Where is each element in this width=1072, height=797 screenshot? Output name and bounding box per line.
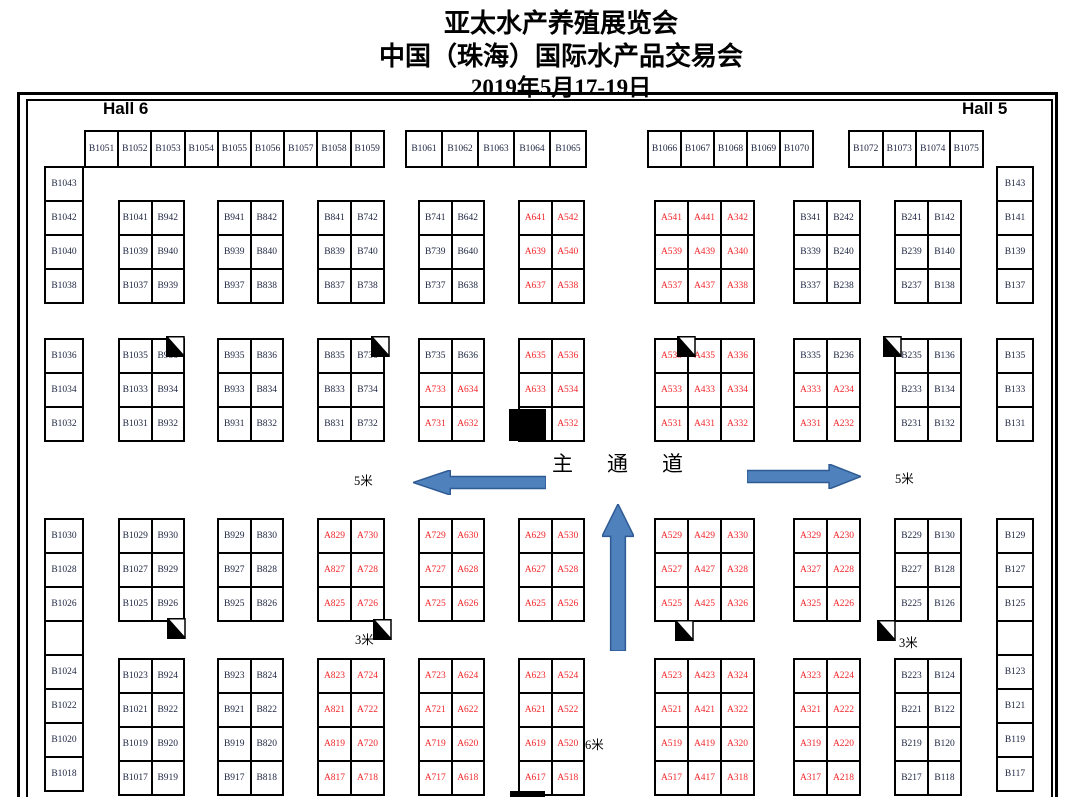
booth-B1056: B1056: [250, 130, 285, 168]
booth-B929: B929: [151, 552, 186, 588]
booth-B1064: B1064: [513, 130, 551, 168]
booth-B129: B129: [996, 518, 1034, 554]
booth-B231: B231: [894, 406, 929, 442]
booth-B929: B929: [217, 518, 252, 554]
booth-B139: B139: [996, 234, 1034, 270]
booth-B1051: B1051: [84, 130, 119, 168]
aisle-size-label: 5米: [895, 468, 914, 487]
booth-A533: A533: [654, 372, 689, 408]
booth-A722: A722: [350, 692, 385, 728]
aisle-size-label: 3米: [899, 632, 918, 651]
booth-B832: B832: [250, 406, 285, 442]
booth-A727: A727: [418, 552, 453, 588]
booth-A730: A730: [350, 518, 385, 554]
booth-A338: A338: [720, 268, 755, 304]
booth-B926: B926: [151, 586, 186, 622]
booth-B142: B142: [927, 200, 962, 236]
booth-B1063: B1063: [477, 130, 515, 168]
booth-A332: A332: [720, 406, 755, 442]
booth-A220: A220: [826, 726, 861, 762]
booth-B1025: B1025: [118, 586, 153, 622]
booth-A326: A326: [720, 586, 755, 622]
booth-A825: A825: [317, 586, 352, 622]
booth-A425: A425: [687, 586, 722, 622]
booth-B239: B239: [894, 234, 929, 270]
booth-A635: A635: [518, 338, 553, 374]
booth-B840: B840: [250, 234, 285, 270]
booth-A539: A539: [654, 234, 689, 270]
booth-A517: A517: [654, 760, 689, 796]
booth-B830: B830: [250, 518, 285, 554]
booth-B735: B735: [418, 338, 453, 374]
booth-A437: A437: [687, 268, 722, 304]
booth-B939: B939: [217, 234, 252, 270]
booth-B934: B934: [151, 372, 186, 408]
booth-A328: A328: [720, 552, 755, 588]
booth-B1067: B1067: [680, 130, 715, 168]
booth-B824: B824: [250, 658, 285, 694]
booth-B839: B839: [317, 234, 352, 270]
booth-A230: A230: [826, 518, 861, 554]
booth-B1030: B1030: [44, 518, 84, 554]
booth-B236: B236: [826, 338, 861, 374]
booth-A439: A439: [687, 234, 722, 270]
booth-B1027: B1027: [118, 552, 153, 588]
booth-B1054: B1054: [184, 130, 219, 168]
booth-B131: B131: [996, 406, 1034, 442]
booth-A441: A441: [687, 200, 722, 236]
booth-B925: B925: [217, 586, 252, 622]
booth-B140: B140: [927, 234, 962, 270]
booth-A336: A336: [720, 338, 755, 374]
booth-A541: A541: [654, 200, 689, 236]
booth-B1040: B1040: [44, 234, 84, 270]
booth-A532: A532: [551, 406, 586, 442]
booth-A630: A630: [451, 518, 486, 554]
booth-A621: A621: [518, 692, 553, 728]
pillar-corner-icon: [877, 620, 896, 641]
booth-A641: A641: [518, 200, 553, 236]
booth-A320: A320: [720, 726, 755, 762]
booth-B940: B940: [151, 234, 186, 270]
booth-B638: B638: [451, 268, 486, 304]
booth-cell-empty: [996, 620, 1034, 656]
booth-B919: B919: [151, 760, 186, 796]
booth-A625: A625: [518, 586, 553, 622]
booth-B1072: B1072: [848, 130, 884, 168]
booth-B1035: B1035: [118, 338, 153, 374]
booth-B1068: B1068: [713, 130, 748, 168]
booth-B1074: B1074: [915, 130, 951, 168]
booth-B1022: B1022: [44, 688, 84, 724]
booth-A524: A524: [551, 658, 586, 694]
booth-B930: B930: [151, 518, 186, 554]
booth-B1062: B1062: [441, 130, 479, 168]
booth-A433: A433: [687, 372, 722, 408]
booth-B237: B237: [894, 268, 929, 304]
booth-A423: A423: [687, 658, 722, 694]
booth-A622: A622: [451, 692, 486, 728]
booth-B120: B120: [927, 726, 962, 762]
booth-A429: A429: [687, 518, 722, 554]
booth-B822: B822: [250, 692, 285, 728]
booth-B1036: B1036: [44, 338, 84, 374]
booth-B1026: B1026: [44, 586, 84, 622]
pillar-block-icon: [509, 409, 546, 441]
booth-B642: B642: [451, 200, 486, 236]
booth-B1029: B1029: [118, 518, 153, 554]
booth-A529: A529: [654, 518, 689, 554]
booth-A725: A725: [418, 586, 453, 622]
booth-A531: A531: [654, 406, 689, 442]
aisle-size-label: 3米: [355, 629, 374, 648]
booth-B1034: B1034: [44, 372, 84, 408]
aisle-arrow-left: [413, 470, 546, 495]
booth-A718: A718: [350, 760, 385, 796]
booth-B734: B734: [350, 372, 385, 408]
floor-plan: 亚太水产养殖展览会 中国（珠海）国际水产品交易会 2019年5月17-19日 H…: [0, 0, 1072, 797]
booth-B119: B119: [996, 722, 1034, 758]
booth-A723: A723: [418, 658, 453, 694]
booth-B132: B132: [927, 406, 962, 442]
booth-A729: A729: [418, 518, 453, 554]
booth-A717: A717: [418, 760, 453, 796]
booth-B740: B740: [350, 234, 385, 270]
booth-A322: A322: [720, 692, 755, 728]
booth-B939: B939: [151, 268, 186, 304]
booth-A817: A817: [317, 760, 352, 796]
booth-B732: B732: [350, 406, 385, 442]
booth-A827: A827: [317, 552, 352, 588]
booth-B1037: B1037: [118, 268, 153, 304]
booth-A519: A519: [654, 726, 689, 762]
booth-A431: A431: [687, 406, 722, 442]
booth-A632: A632: [451, 406, 486, 442]
booth-B1023: B1023: [118, 658, 153, 694]
booth-A619: A619: [518, 726, 553, 762]
booth-B241: B241: [894, 200, 929, 236]
booth-B838: B838: [250, 268, 285, 304]
booth-B238: B238: [826, 268, 861, 304]
booth-A731: A731: [418, 406, 453, 442]
booth-B227: B227: [894, 552, 929, 588]
booth-B130: B130: [927, 518, 962, 554]
booth-B1017: B1017: [118, 760, 153, 796]
booth-B136: B136: [927, 338, 962, 374]
booth-B738: B738: [350, 268, 385, 304]
booth-A528: A528: [551, 552, 586, 588]
booth-B921: B921: [217, 692, 252, 728]
booth-A634: A634: [451, 372, 486, 408]
booth-B124: B124: [927, 658, 962, 694]
booth-A324: A324: [720, 658, 755, 694]
booth-B125: B125: [996, 586, 1034, 622]
booth-B1052: B1052: [117, 130, 152, 168]
booth-B1053: B1053: [150, 130, 185, 168]
booth-B128: B128: [927, 552, 962, 588]
booth-A728: A728: [350, 552, 385, 588]
booth-B935: B935: [217, 338, 252, 374]
booth-A421: A421: [687, 692, 722, 728]
booth-B919: B919: [217, 726, 252, 762]
booth-B828: B828: [250, 552, 285, 588]
booth-B920: B920: [151, 726, 186, 762]
booth-A222: A222: [826, 692, 861, 728]
hall5-label: Hall 5: [962, 99, 1007, 119]
booth-B219: B219: [894, 726, 929, 762]
booth-B1065: B1065: [549, 130, 587, 168]
main-aisle-label: 主通道: [552, 448, 717, 478]
booth-B640: B640: [451, 234, 486, 270]
booth-B135: B135: [996, 338, 1034, 374]
aisle-arrow-right: [747, 464, 861, 489]
booth-A523: A523: [654, 658, 689, 694]
booth-B127: B127: [996, 552, 1034, 588]
booth-A224: A224: [826, 658, 861, 694]
booth-B1038: B1038: [44, 268, 84, 304]
booth-B1028: B1028: [44, 552, 84, 588]
booth-A829: A829: [317, 518, 352, 554]
booth-B121: B121: [996, 688, 1034, 724]
booth-B133: B133: [996, 372, 1034, 408]
pillar-block-icon: [510, 791, 545, 797]
booth-A342: A342: [720, 200, 755, 236]
booth-B933: B933: [217, 372, 252, 408]
booth-B118: B118: [927, 760, 962, 796]
booth-A724: A724: [350, 658, 385, 694]
booth-B1032: B1032: [44, 406, 84, 442]
booth-A537: A537: [654, 268, 689, 304]
booth-B922: B922: [151, 692, 186, 728]
booth-B134: B134: [927, 372, 962, 408]
booth-A628: A628: [451, 552, 486, 588]
booth-A823: A823: [317, 658, 352, 694]
booth-B141: B141: [996, 200, 1034, 236]
booth-B223: B223: [894, 658, 929, 694]
booth-B221: B221: [894, 692, 929, 728]
booth-A323: A323: [793, 658, 828, 694]
booth-A319: A319: [793, 726, 828, 762]
booth-B831: B831: [317, 406, 352, 442]
booth-B937: B937: [217, 268, 252, 304]
booth-A526: A526: [551, 586, 586, 622]
booth-A536: A536: [551, 338, 586, 374]
booth-B1055: B1055: [217, 130, 252, 168]
booth-B1039: B1039: [118, 234, 153, 270]
booth-A334: A334: [720, 372, 755, 408]
booth-B737: B737: [418, 268, 453, 304]
booth-B217: B217: [894, 760, 929, 796]
booth-B826: B826: [250, 586, 285, 622]
booth-B1075: B1075: [949, 130, 985, 168]
booth-A626: A626: [451, 586, 486, 622]
booth-A327: A327: [793, 552, 828, 588]
booth-A542: A542: [551, 200, 586, 236]
booth-B836: B836: [250, 338, 285, 374]
booth-A330: A330: [720, 518, 755, 554]
booth-B636: B636: [451, 338, 486, 374]
pillar-corner-icon: [166, 336, 185, 357]
booth-A821: A821: [317, 692, 352, 728]
booth-B1070: B1070: [779, 130, 814, 168]
booth-B126: B126: [927, 586, 962, 622]
booth-A540: A540: [551, 234, 586, 270]
pillar-corner-icon: [675, 620, 694, 641]
booth-A518: A518: [551, 760, 586, 796]
booth-A627: A627: [518, 552, 553, 588]
booth-B917: B917: [217, 760, 252, 796]
booth-A637: A637: [518, 268, 553, 304]
booth-A419: A419: [687, 726, 722, 762]
booth-B240: B240: [826, 234, 861, 270]
booth-B1020: B1020: [44, 722, 84, 758]
booth-A720: A720: [350, 726, 385, 762]
booth-B739: B739: [418, 234, 453, 270]
aisle-size-label: 5米: [354, 470, 373, 489]
booth-B225: B225: [894, 586, 929, 622]
booth-B1021: B1021: [118, 692, 153, 728]
exhibition-title: 亚太水产养殖展览会: [50, 3, 1072, 40]
booth-B820: B820: [250, 726, 285, 762]
booth-B229: B229: [894, 518, 929, 554]
booth-B337: B337: [793, 268, 828, 304]
aisle-arrow-up: [602, 504, 634, 651]
booth-B1031: B1031: [118, 406, 153, 442]
booth-A530: A530: [551, 518, 586, 554]
booth-A329: A329: [793, 518, 828, 554]
booth-A733: A733: [418, 372, 453, 408]
pillar-corner-icon: [677, 336, 696, 357]
booth-A819: A819: [317, 726, 352, 762]
booth-B1033: B1033: [118, 372, 153, 408]
booth-B931: B931: [217, 406, 252, 442]
booth-A321: A321: [793, 692, 828, 728]
booth-B837: B837: [317, 268, 352, 304]
booth-B242: B242: [826, 200, 861, 236]
booth-B1059: B1059: [350, 130, 385, 168]
booth-B138: B138: [927, 268, 962, 304]
booth-cell-empty: [44, 620, 84, 656]
booth-B137: B137: [996, 268, 1034, 304]
booth-B339: B339: [793, 234, 828, 270]
booth-A234: A234: [826, 372, 861, 408]
booth-B1042: B1042: [44, 200, 84, 236]
booth-A719: A719: [418, 726, 453, 762]
booth-B123: B123: [996, 654, 1034, 690]
booth-B841: B841: [317, 200, 352, 236]
booth-A331: A331: [793, 406, 828, 442]
booth-A633: A633: [518, 372, 553, 408]
booth-A520: A520: [551, 726, 586, 762]
booth-A721: A721: [418, 692, 453, 728]
booth-A417: A417: [687, 760, 722, 796]
booth-A522: A522: [551, 692, 586, 728]
booth-A525: A525: [654, 586, 689, 622]
booth-B818: B818: [250, 760, 285, 796]
booth-B143: B143: [996, 166, 1034, 202]
booth-A317: A317: [793, 760, 828, 796]
booth-A333: A333: [793, 372, 828, 408]
booth-B1018: B1018: [44, 756, 84, 792]
booth-B233: B233: [894, 372, 929, 408]
booth-B1069: B1069: [746, 130, 781, 168]
booth-A624: A624: [451, 658, 486, 694]
booth-A618: A618: [451, 760, 486, 796]
booth-B1041: B1041: [118, 200, 153, 236]
booth-A623: A623: [518, 658, 553, 694]
booth-A527: A527: [654, 552, 689, 588]
booth-B122: B122: [927, 692, 962, 728]
booth-B835: B835: [317, 338, 352, 374]
booth-B942: B942: [151, 200, 186, 236]
booth-B923: B923: [217, 658, 252, 694]
booth-B1024: B1024: [44, 654, 84, 690]
booth-A521: A521: [654, 692, 689, 728]
booth-A629: A629: [518, 518, 553, 554]
aisle-size-label: 6米: [585, 734, 604, 753]
pillar-corner-icon: [373, 619, 392, 640]
hall6-label: Hall 6: [103, 99, 148, 119]
booth-B941: B941: [217, 200, 252, 236]
booth-B924: B924: [151, 658, 186, 694]
booth-B1057: B1057: [283, 130, 318, 168]
booth-B834: B834: [250, 372, 285, 408]
booth-A218: A218: [826, 760, 861, 796]
booth-A620: A620: [451, 726, 486, 762]
booth-A726: A726: [350, 586, 385, 622]
booth-B1066: B1066: [647, 130, 682, 168]
booth-A228: A228: [826, 552, 861, 588]
booth-A639: A639: [518, 234, 553, 270]
booth-B341: B341: [793, 200, 828, 236]
booth-B833: B833: [317, 372, 352, 408]
booth-B1043: B1043: [44, 166, 84, 202]
pillar-corner-icon: [167, 618, 186, 639]
booth-B117: B117: [996, 756, 1034, 792]
booth-B927: B927: [217, 552, 252, 588]
booth-A226: A226: [826, 586, 861, 622]
booth-A232: A232: [826, 406, 861, 442]
booth-B1061: B1061: [405, 130, 443, 168]
booth-A427: A427: [687, 552, 722, 588]
booth-B1073: B1073: [882, 130, 918, 168]
booth-B742: B742: [350, 200, 385, 236]
booth-B932: B932: [151, 406, 186, 442]
booth-B741: B741: [418, 200, 453, 236]
pillar-corner-icon: [883, 336, 902, 357]
booth-B842: B842: [250, 200, 285, 236]
booth-A318: A318: [720, 760, 755, 796]
booth-B1019: B1019: [118, 726, 153, 762]
booth-A534: A534: [551, 372, 586, 408]
booth-B1058: B1058: [316, 130, 351, 168]
booth-A538: A538: [551, 268, 586, 304]
pillar-corner-icon: [371, 336, 390, 357]
booth-B335: B335: [793, 338, 828, 374]
booth-A340: A340: [720, 234, 755, 270]
booth-A325: A325: [793, 586, 828, 622]
